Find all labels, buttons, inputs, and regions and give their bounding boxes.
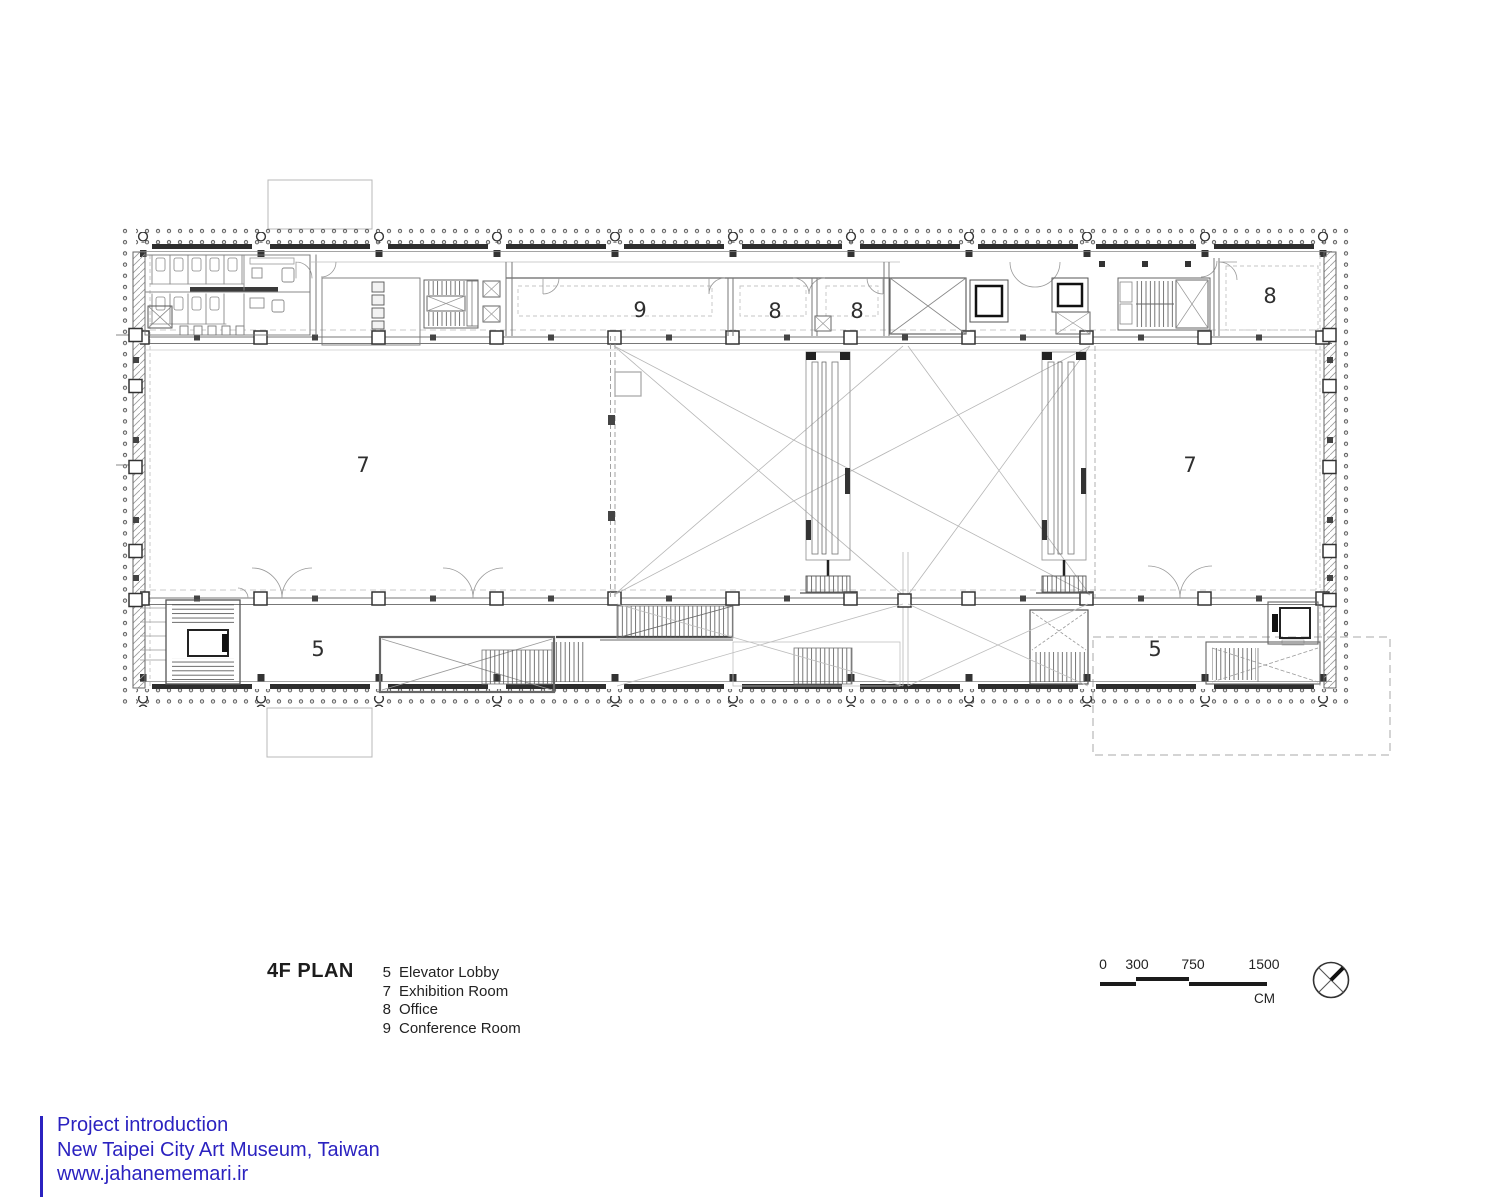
footer-line-project: Project introduction	[57, 1113, 380, 1138]
legend-item: 9 Conference Room	[377, 1020, 521, 1039]
legend-label: Elevator Lobby	[399, 964, 499, 983]
scale-segment	[1136, 977, 1189, 981]
legend-label: Office	[399, 1001, 438, 1020]
vent-shafts	[483, 281, 500, 322]
room-label-conference: 9	[633, 298, 646, 322]
elevator-north-a	[970, 280, 1008, 322]
interior-main-walls	[129, 329, 1336, 607]
scale-tick: 750	[1181, 956, 1204, 972]
conference-room	[518, 278, 725, 316]
column-squares-south-wall	[140, 591, 1332, 606]
column-rings-south	[136, 696, 1338, 707]
elevator-stair-core-west	[140, 600, 240, 684]
legend-item: 7 Exhibition Room	[377, 983, 521, 1002]
footer: Project introduction New Taipei City Art…	[57, 1113, 380, 1187]
room-label-office-east: 8	[1263, 284, 1276, 308]
legend-number: 5	[377, 964, 391, 983]
floor-plan-drawing: 9 8 8 8 7 7 5 5	[0, 0, 1488, 1200]
scale-tick: 0	[1099, 956, 1107, 972]
footer-line-url[interactable]: www.jahanememari.ir	[57, 1162, 380, 1187]
partition-wall-west	[611, 336, 616, 600]
wall-niche	[615, 372, 641, 396]
column-rings-north	[136, 232, 1338, 243]
south-strip	[140, 566, 1320, 692]
braced-shaft	[890, 278, 966, 334]
floor-plan-sheet: 9 8 8 8 7 7 5 5 4F PLAN 5 Elevator Lobby…	[0, 0, 1488, 1200]
legend: 5 Elevator Lobby 7 Exhibition Room 8 Off…	[377, 964, 521, 1038]
scale-tick: 1500	[1248, 956, 1279, 972]
room-label-exhibition-east: 7	[1183, 453, 1196, 477]
legend-label: Conference Room	[399, 1020, 521, 1039]
sight-lines	[614, 346, 1090, 595]
footer-line-title: New Taipei City Art Museum, Taiwan	[57, 1138, 380, 1163]
restrooms-northwest	[145, 255, 316, 335]
scale-unit: CM	[1254, 991, 1275, 1006]
footer-accent-bar	[40, 1116, 43, 1197]
escalator-void-west	[380, 637, 554, 692]
movable-wall-track-east	[1036, 352, 1092, 593]
north-arrow-icon	[1309, 958, 1353, 1002]
movable-wall-track-west	[800, 352, 856, 593]
column-squares-north-wall	[140, 330, 1332, 345]
scale-segment	[1189, 982, 1267, 986]
room-label-lobby-west: 5	[311, 637, 324, 661]
elevator-north-b	[1052, 278, 1090, 334]
room-label-lobby-east: 5	[1148, 637, 1161, 661]
legend-number: 7	[377, 983, 391, 1002]
stair-core-northeast	[1118, 261, 1217, 330]
stair-core-northwest	[424, 280, 478, 328]
legend-label: Exhibition Room	[399, 983, 508, 1002]
scale-tick: 300	[1125, 956, 1148, 972]
scale-segment	[1100, 982, 1136, 986]
legend-number: 9	[377, 1020, 391, 1039]
legend-item: 8 Office	[377, 1001, 521, 1020]
legend-item: 5 Elevator Lobby	[377, 964, 521, 983]
louver-band-north	[140, 244, 1332, 250]
page-title: 4F PLAN	[267, 960, 354, 983]
louver-band-south	[140, 684, 1332, 690]
elevator-stair-core-east	[1206, 602, 1320, 684]
legend-number: 8	[377, 1001, 391, 1020]
room-label-office-b: 8	[850, 299, 863, 323]
room-label-office-a: 8	[768, 299, 781, 323]
room-label-exhibition-west: 7	[356, 453, 369, 477]
